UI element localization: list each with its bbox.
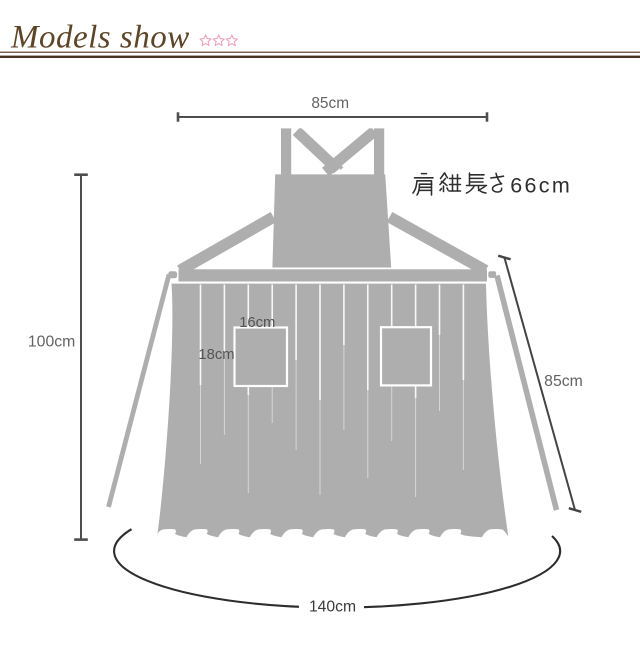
svg-text:85cm: 85cm (311, 95, 349, 112)
svg-text:66cm: 66cm (510, 174, 572, 198)
svg-text:Models show: Models show (10, 20, 190, 56)
svg-text:100cm: 100cm (28, 334, 75, 351)
svg-text:85cm: 85cm (544, 373, 583, 390)
svg-text:140cm: 140cm (309, 598, 356, 615)
svg-text:16cm: 16cm (239, 315, 275, 331)
svg-text:18cm: 18cm (198, 347, 234, 363)
